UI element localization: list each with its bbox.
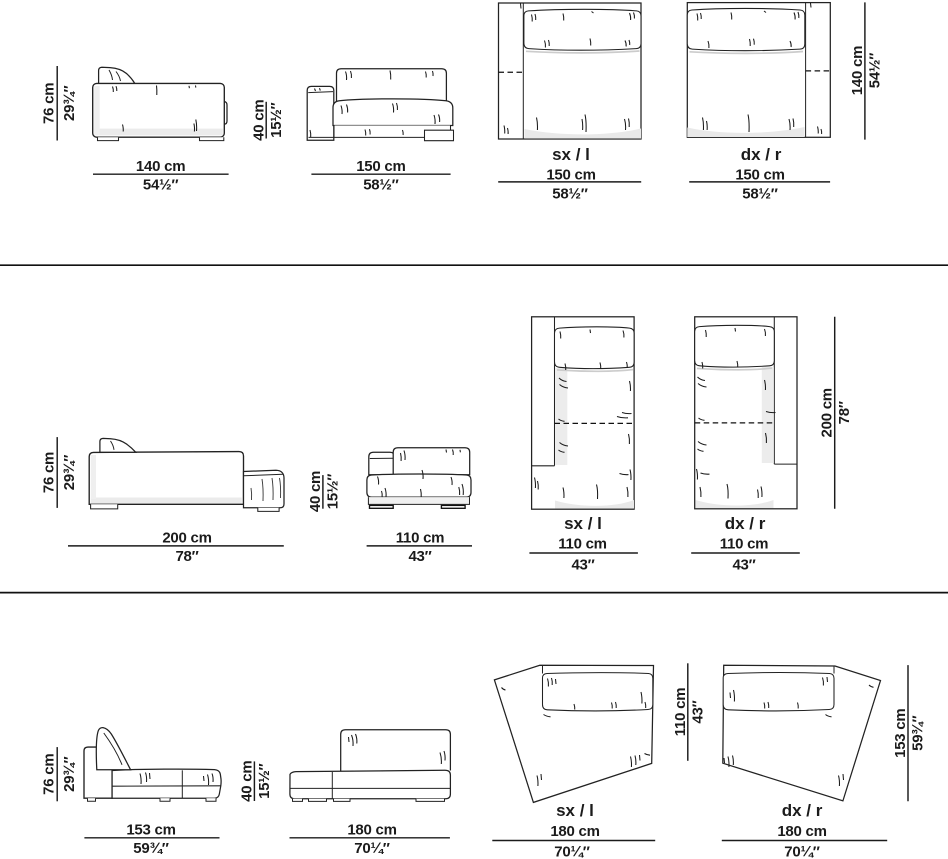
svg-text:140 cm: 140 cm [136, 158, 185, 175]
svg-text:58½″: 58½″ [552, 186, 587, 203]
svg-text:58½″: 58½″ [742, 186, 777, 203]
svg-text:15½″: 15½″ [325, 474, 342, 509]
svg-text:29¾″: 29¾″ [61, 756, 78, 791]
svg-text:110 cm: 110 cm [672, 688, 689, 737]
svg-text:43″: 43″ [689, 700, 706, 723]
svg-text:70¼″: 70¼″ [554, 844, 589, 859]
svg-text:40 cm: 40 cm [250, 100, 267, 141]
svg-text:150 cm: 150 cm [546, 167, 595, 184]
svg-text:78″: 78″ [175, 548, 198, 565]
svg-text:150 cm: 150 cm [356, 158, 405, 175]
svg-text:dx / r: dx / r [725, 514, 766, 533]
svg-text:110 cm: 110 cm [396, 530, 445, 547]
svg-text:59¾″: 59¾″ [910, 715, 927, 750]
svg-text:140 cm: 140 cm [849, 46, 866, 95]
svg-text:110 cm: 110 cm [558, 536, 607, 553]
svg-text:sx / l: sx / l [556, 801, 594, 820]
svg-text:43″: 43″ [732, 557, 755, 574]
svg-text:153 cm: 153 cm [126, 822, 175, 839]
svg-text:54½″: 54½″ [866, 53, 883, 88]
svg-text:76 cm: 76 cm [40, 83, 57, 124]
svg-text:110 cm: 110 cm [720, 536, 769, 553]
svg-text:58½″: 58½″ [363, 176, 398, 193]
svg-text:76 cm: 76 cm [40, 452, 57, 493]
svg-text:43″: 43″ [408, 548, 431, 565]
svg-text:sx / l: sx / l [564, 514, 602, 533]
svg-text:15½″: 15½″ [256, 763, 273, 798]
svg-text:153 cm: 153 cm [892, 709, 909, 758]
svg-text:200 cm: 200 cm [819, 388, 836, 437]
svg-text:dx / r: dx / r [741, 145, 782, 164]
svg-text:dx / r: dx / r [782, 801, 823, 820]
svg-text:40 cm: 40 cm [307, 471, 324, 512]
svg-text:29¾″: 29¾″ [61, 455, 78, 490]
svg-text:54½″: 54½″ [143, 176, 178, 193]
svg-text:59¾″: 59¾″ [133, 840, 168, 857]
svg-text:78″: 78″ [836, 401, 853, 424]
svg-text:15½″: 15½″ [268, 102, 285, 137]
svg-text:70¼″: 70¼″ [354, 840, 389, 857]
svg-text:180 cm: 180 cm [550, 823, 599, 840]
svg-text:200 cm: 200 cm [162, 530, 211, 547]
svg-text:70¼″: 70¼″ [784, 844, 819, 859]
svg-text:180 cm: 180 cm [347, 822, 396, 839]
svg-text:150 cm: 150 cm [735, 167, 784, 184]
svg-text:43″: 43″ [571, 557, 594, 574]
svg-text:29¾″: 29¾″ [61, 86, 78, 121]
svg-text:76 cm: 76 cm [40, 754, 57, 795]
svg-text:180 cm: 180 cm [777, 823, 826, 840]
svg-text:40 cm: 40 cm [238, 761, 255, 802]
svg-text:sx / l: sx / l [552, 145, 590, 164]
